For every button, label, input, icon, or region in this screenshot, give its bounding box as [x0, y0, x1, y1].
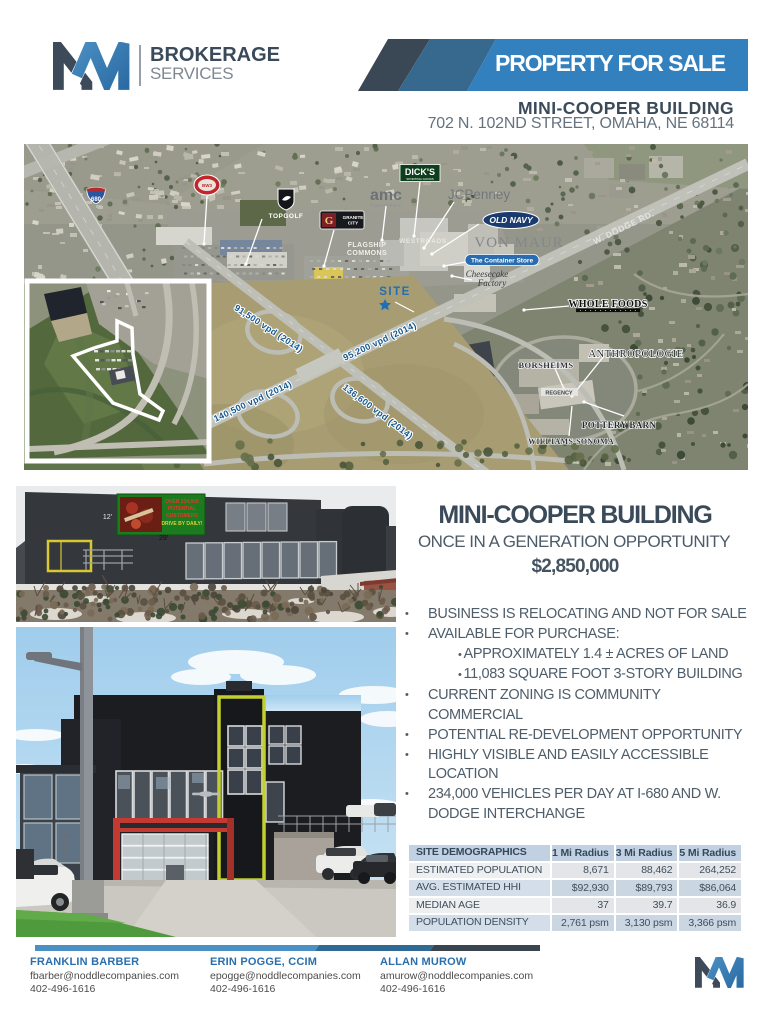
svg-text:JCPenney: JCPenney [448, 187, 511, 202]
svg-text:WILLIAMS-SONOMA: WILLIAMS-SONOMA [528, 437, 614, 446]
svg-text:DICK'S: DICK'S [405, 167, 435, 177]
svg-text:VON MAUR: VON MAUR [474, 235, 563, 251]
svg-text:CITY: CITY [348, 221, 358, 226]
svg-text:ANTHROPOLOGIE: ANTHROPOLOGIE [588, 349, 683, 360]
svg-text:DRIVE BY DAILY!: DRIVE BY DAILY! [161, 521, 202, 527]
svg-text:amc: amc [370, 187, 402, 204]
svg-text:SITE: SITE [379, 286, 411, 298]
svg-text:THEATRES: THEATRES [370, 203, 402, 208]
svg-text:POTENTIAL: POTENTIAL [168, 506, 196, 512]
svg-text:12': 12' [103, 514, 112, 521]
svg-text:The Container Store: The Container Store [471, 258, 534, 265]
svg-text:REGENCY: REGENCY [545, 391, 573, 397]
svg-text:FLAGSHIP: FLAGSHIP [348, 242, 387, 249]
svg-text:29': 29' [159, 535, 168, 542]
svg-text:680: 680 [91, 197, 102, 203]
svg-text:COMMONS: COMMONS [347, 250, 387, 257]
svg-text:BORSHEIMS: BORSHEIMS [518, 360, 573, 370]
svg-text:POTTERY BARN: POTTERY BARN [582, 420, 656, 430]
svg-text:CUSTOMERS: CUSTOMERS [166, 513, 199, 519]
svg-text:BW3: BW3 [202, 183, 212, 188]
svg-text:WHOLE FOODS: WHOLE FOODS [568, 299, 647, 310]
svg-text:WESTROADS: WESTROADS [399, 238, 447, 245]
svg-text:OLD NAVY: OLD NAVY [489, 215, 534, 225]
svg-text:GRANITE: GRANITE [343, 215, 364, 220]
svg-text:SPORTING GOODS: SPORTING GOODS [406, 177, 434, 181]
svg-text:Factory: Factory [477, 278, 507, 288]
svg-text:G: G [325, 215, 334, 227]
svg-text:OVER 234,000: OVER 234,000 [165, 499, 199, 505]
svg-text:TOPGOLF: TOPGOLF [269, 213, 304, 220]
